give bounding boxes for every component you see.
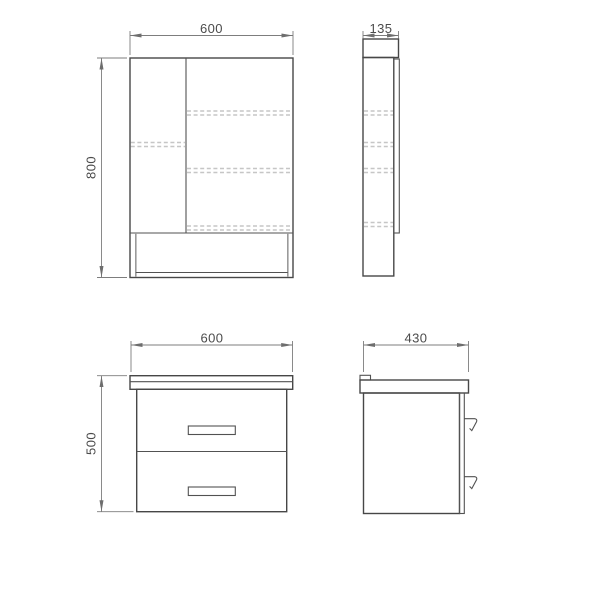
drawer-front-panel (460, 393, 465, 514)
countertop (130, 376, 293, 390)
cabinet-outline (130, 58, 293, 278)
dim-label-vanity-depth: 430 (405, 331, 428, 346)
drawer-handle-profile (464, 477, 476, 489)
backsplash-upstand (360, 375, 371, 380)
dim-label-vanity-width: 600 (201, 331, 224, 346)
drawer-handle (188, 426, 235, 435)
vanity-set-technical-drawing: 600 800 135 (0, 0, 600, 600)
cabinet-carcass (364, 393, 460, 514)
vanity-side-view: 430 (360, 331, 477, 514)
cabinet-carcass (363, 58, 394, 277)
countertop (360, 380, 469, 393)
cabinet-body (137, 389, 287, 511)
mirror-door-panel (394, 59, 400, 233)
drawer-handle-profile (464, 419, 476, 431)
dim-label-mirror-width: 600 (200, 21, 223, 36)
vanity-front-view: 600 500 (84, 331, 293, 512)
cabinet-top-panel (363, 39, 399, 58)
dim-label-mirror-depth: 135 (370, 21, 393, 36)
mirror-cabinet-front-view: 600 800 (84, 21, 294, 278)
technical-drawing-canvas: 600 800 135 (0, 0, 600, 600)
dim-label-mirror-height: 800 (84, 156, 99, 179)
mirror-cabinet-side-view: 135 (363, 21, 399, 276)
dim-label-vanity-height: 500 (84, 432, 99, 455)
drawer-handle (188, 487, 235, 496)
